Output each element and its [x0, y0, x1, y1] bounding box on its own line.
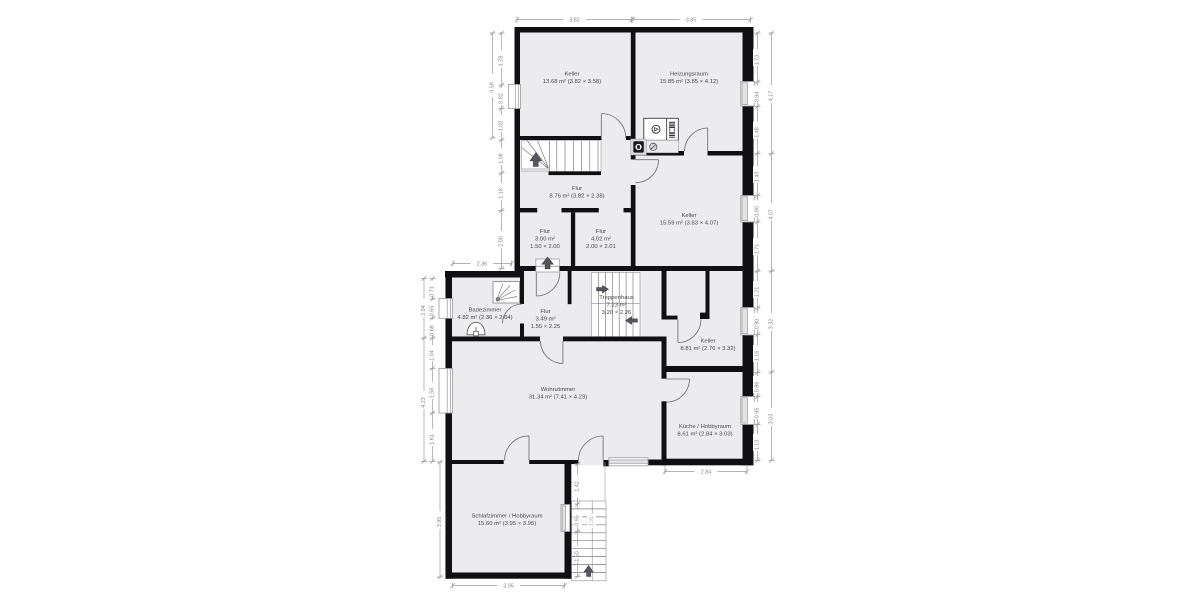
svg-text:Flur: Flur: [540, 309, 550, 315]
svg-text:4.02 m²: 4.02 m²: [591, 237, 611, 243]
svg-text:0.95: 0.95: [755, 408, 761, 419]
svg-text:4.23: 4.23: [421, 397, 427, 408]
svg-text:Flur: Flur: [540, 229, 550, 235]
svg-text:Keller: Keller: [681, 213, 696, 219]
svg-text:Küche / Hobbyraum: Küche / Hobbyraum: [679, 424, 731, 430]
svg-text:1.13: 1.13: [755, 440, 761, 451]
svg-text:1.04: 1.04: [430, 350, 436, 361]
svg-text:1.08: 1.08: [499, 153, 505, 164]
svg-text:4.82 m² (2.36 × 2.04): 4.82 m² (2.36 × 2.04): [457, 315, 512, 321]
svg-text:0.82: 0.82: [499, 93, 505, 104]
svg-text:1.78: 1.78: [499, 56, 505, 67]
svg-text:7.23 m²: 7.23 m²: [607, 303, 627, 309]
svg-text:3.82: 3.82: [569, 18, 580, 24]
svg-text:Flur: Flur: [572, 186, 582, 192]
svg-text:1.50 × 2.00: 1.50 × 2.00: [530, 244, 560, 250]
svg-text:Keller: Keller: [564, 72, 579, 78]
svg-text:13.68 m² (3.82 × 3.58): 13.68 m² (3.82 × 3.58): [543, 79, 601, 85]
svg-text:2.04: 2.04: [421, 305, 427, 316]
svg-text:Heizungsraum: Heizungsraum: [670, 72, 708, 78]
svg-text:Wohnzimmer: Wohnzimmer: [541, 387, 576, 393]
svg-text:1.42: 1.42: [575, 481, 581, 492]
svg-text:0.90: 0.90: [755, 206, 761, 217]
svg-text:1.43: 1.43: [755, 172, 761, 183]
svg-text:1.02: 1.02: [499, 121, 505, 132]
svg-text:1.55 × 2.25: 1.55 × 2.25: [531, 324, 561, 330]
svg-text:0.94: 0.94: [755, 92, 761, 103]
svg-text:Flur: Flur: [596, 229, 606, 235]
svg-text:2.00 × 2.01: 2.00 × 2.01: [586, 244, 616, 250]
svg-text:0.71: 0.71: [430, 286, 436, 297]
svg-text:1.58: 1.58: [430, 388, 436, 399]
svg-text:1.16: 1.16: [755, 351, 761, 362]
svg-text:0.95: 0.95: [575, 515, 581, 526]
svg-text:2.84: 2.84: [701, 470, 712, 476]
svg-text:15.59 m² (3.83 × 4.07): 15.59 m² (3.83 × 4.07): [660, 221, 718, 227]
svg-text:0.86: 0.86: [755, 382, 761, 393]
svg-text:Treppenhaus: Treppenhaus: [599, 295, 634, 301]
svg-text:3.32: 3.32: [769, 319, 775, 330]
svg-text:1.48: 1.48: [755, 127, 761, 138]
svg-text:0.65: 0.65: [430, 306, 436, 317]
svg-text:3.85: 3.85: [686, 18, 697, 24]
svg-text:0.90: 0.90: [755, 319, 761, 330]
svg-text:4.07: 4.07: [769, 209, 775, 220]
svg-text:3.49 m²: 3.49 m²: [536, 317, 556, 323]
svg-text:1.73: 1.73: [755, 55, 761, 66]
svg-text:3.20 × 2.26: 3.20 × 2.26: [602, 310, 632, 316]
svg-text:Badezimmer: Badezimmer: [468, 308, 501, 314]
svg-text:1.50: 1.50: [575, 551, 581, 562]
svg-text:Keller: Keller: [700, 339, 715, 345]
svg-text:3.95: 3.95: [503, 584, 514, 590]
svg-text:8.81 m² (2.76 × 3.32): 8.81 m² (2.76 × 3.32): [680, 346, 735, 352]
svg-text:3.00 m²: 3.00 m²: [535, 237, 555, 243]
svg-text:1.61: 1.61: [430, 434, 436, 445]
svg-text:4.17: 4.17: [769, 91, 775, 102]
svg-text:15.85 m² (3.85 × 4.12): 15.85 m² (3.85 × 4.12): [660, 79, 718, 85]
svg-text:2.00: 2.00: [499, 236, 505, 247]
svg-text:1.21: 1.21: [755, 287, 761, 298]
svg-text:0.68: 0.68: [430, 325, 436, 336]
svg-text:2.36: 2.36: [477, 262, 488, 268]
svg-text:31.34 m² (7.41 × 4.23): 31.34 m² (7.41 × 4.23): [529, 395, 587, 401]
svg-text:8.76 m² (3.82 × 2.38): 8.76 m² (3.82 × 2.38): [549, 194, 604, 200]
svg-text:15.60 m² (3.95 × 3.95): 15.60 m² (3.95 × 3.95): [478, 521, 536, 527]
svg-text:1.71: 1.71: [755, 244, 761, 255]
svg-text:8.61 m² (2.84 × 3.03): 8.61 m² (2.84 × 3.03): [677, 432, 732, 438]
svg-text:1.18: 1.18: [499, 188, 505, 199]
svg-text:1.91: 1.91: [589, 516, 595, 526]
svg-text:Schlafzimmer / Hobbyraum: Schlafzimmer / Hobbyraum: [471, 514, 542, 520]
svg-text:3.03: 3.03: [769, 414, 775, 425]
svg-text:3.95: 3.95: [437, 517, 443, 528]
svg-text:3.58: 3.58: [490, 82, 496, 93]
